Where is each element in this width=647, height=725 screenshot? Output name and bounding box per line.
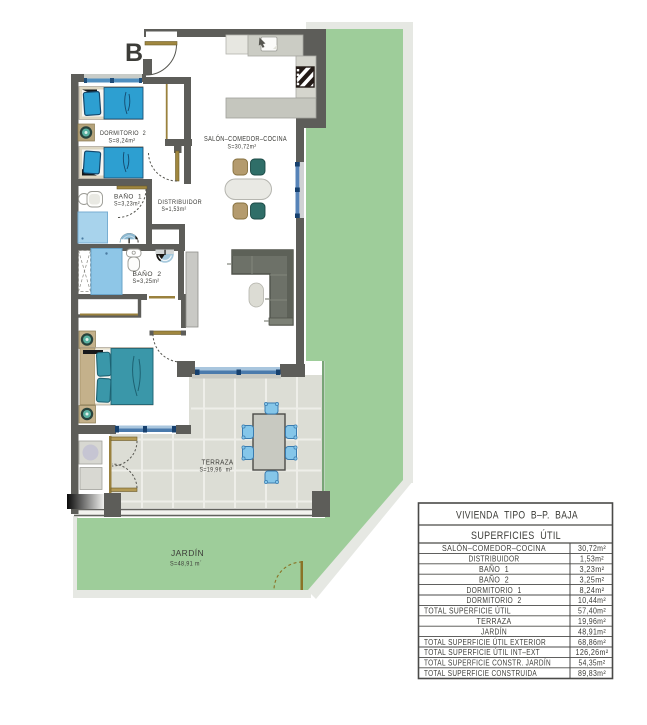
svg-text:BAÑO 2: BAÑO 2 [479, 575, 509, 584]
svg-text:S=8,24m²: S=8,24m² [109, 139, 136, 145]
svg-text:S=3,23m²: S=3,23m² [114, 202, 140, 208]
svg-text:DORMITORIO 1: DORMITORIO 1 [467, 586, 522, 595]
svg-text:TERRAZA: TERRAZA [477, 617, 512, 626]
svg-text:SALÓN–COMEDOR–COCINA: SALÓN–COMEDOR–COCINA [204, 134, 287, 143]
svg-text:BAÑO 1: BAÑO 1 [114, 192, 142, 201]
svg-text:JARDÍN: JARDÍN [171, 548, 204, 558]
svg-text:S=1,53m²: S=1,53m² [162, 207, 187, 213]
svg-text:S=3,25m²: S=3,25m² [133, 279, 160, 285]
svg-text:68,86m²: 68,86m² [578, 638, 606, 647]
svg-text:TOTAL SUPERFICIE ÚTIL EXTERIOR: TOTAL SUPERFICIE ÚTIL EXTERIOR [424, 638, 546, 647]
svg-text:S=48,91 m´: S=48,91 m´ [170, 561, 202, 568]
svg-text:TOTAL SUPERFICIE ÚTIL INT–EXT: TOTAL SUPERFICIE ÚTIL INT–EXT [424, 648, 540, 657]
svg-text:DISTRIBUIDOR: DISTRIBUIDOR [469, 555, 520, 564]
svg-text:3,25m²: 3,25m² [580, 575, 605, 584]
svg-text:89,83m²: 89,83m² [578, 669, 606, 678]
svg-text:TERRAZA: TERRAZA [202, 458, 234, 467]
svg-text:19,96m²: 19,96m² [578, 617, 606, 626]
svg-text:JARDÍN: JARDÍN [481, 627, 507, 636]
svg-text:SALÓN–COMEDOR–COCINA: SALÓN–COMEDOR–COCINA [442, 544, 546, 553]
svg-text:DORMITORIO 2: DORMITORIO 2 [467, 596, 522, 605]
svg-text:10,44m²: 10,44m² [578, 596, 606, 605]
svg-text:DISTRIBUIDOR: DISTRIBUIDOR [158, 199, 202, 206]
svg-text:B: B [125, 39, 143, 67]
svg-text:126,26m²: 126,26m² [576, 648, 609, 657]
svg-text:57,40m²: 57,40m² [578, 607, 606, 616]
svg-text:BAÑO 1: BAÑO 1 [479, 565, 509, 574]
svg-text:DORMITORIO 2: DORMITORIO 2 [100, 130, 146, 137]
svg-text:S=19,96 m²: S=19,96 m² [200, 468, 233, 474]
svg-text:S=30,72m²: S=30,72m² [228, 145, 257, 151]
svg-text:1,53m²: 1,53m² [580, 555, 604, 564]
svg-text:TOTAL SUPERFICIE CONSTR. JARDÍ: TOTAL SUPERFICIE CONSTR. JARDÍN [424, 659, 551, 668]
svg-text:8,24m²: 8,24m² [580, 586, 605, 595]
svg-text:BAÑO 2: BAÑO 2 [133, 269, 162, 278]
svg-text:TOTAL SUPERFICIE ÚTIL: TOTAL SUPERFICIE ÚTIL [424, 607, 511, 616]
svg-text:TOTAL SUPERFICIE CONSTRUIDA: TOTAL SUPERFICIE CONSTRUIDA [424, 669, 537, 678]
svg-text:SUPERFICIES ÚTIL: SUPERFICIES ÚTIL [471, 529, 561, 542]
svg-text:54,35m²: 54,35m² [579, 659, 606, 668]
svg-text:48,91m²: 48,91m² [578, 627, 606, 636]
svg-text:3,23m²: 3,23m² [580, 565, 605, 574]
svg-text:30,72m²: 30,72m² [578, 544, 606, 553]
svg-text:VIVIENDA TIPO B–P. BAJA: VIVIENDA TIPO B–P. BAJA [456, 510, 578, 522]
